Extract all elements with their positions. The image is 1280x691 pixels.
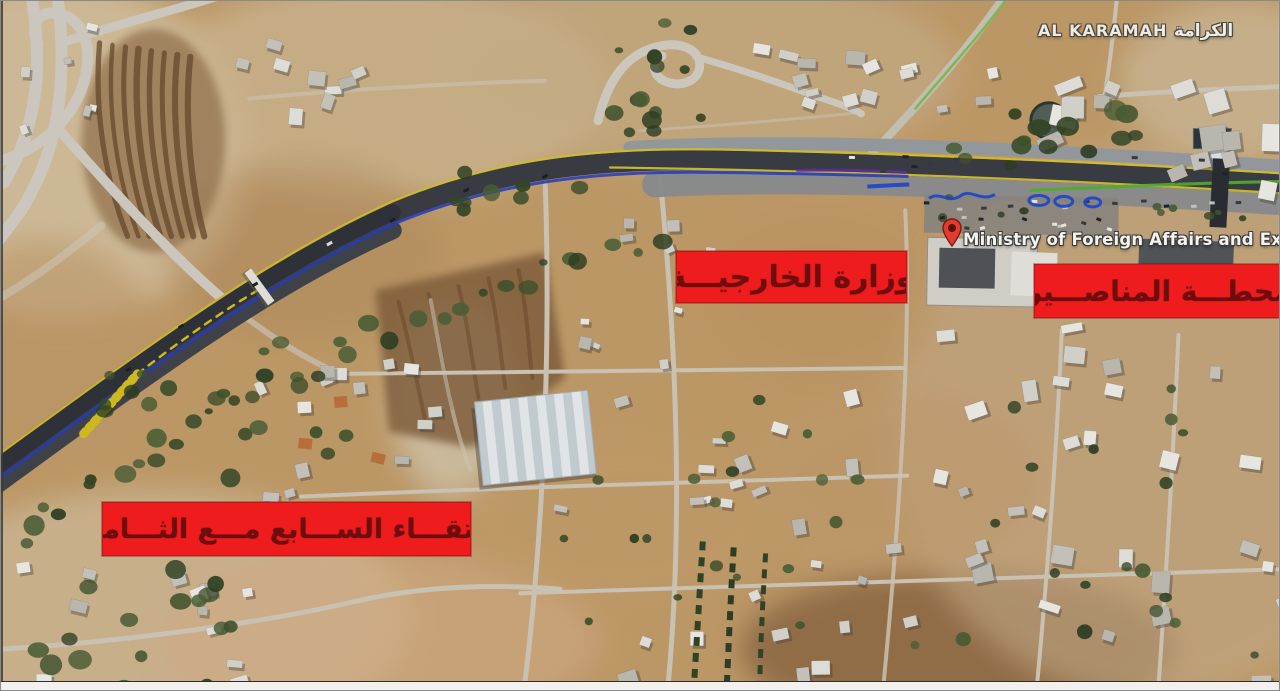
area-name-latin: AL KARAMAH [1038,21,1167,40]
poi-name-label: Ministry of Foreign Affairs and Expatria… [963,230,1280,249]
label-foreign-ministry: وزارة الخارجيـــة [676,251,907,303]
satellite-imagery [1,1,1279,690]
image-grain [2,1,1278,690]
area-name-arabic: الكرامة [1174,21,1233,41]
image-left-border [1,1,3,690]
satellite-map: AL KARAMAH الكرامة Ministry of Foreign A… [0,0,1280,691]
label-seventh-eighth-junction: التقـــاء الســـابع مـــع الثـــامن [102,502,471,556]
bottom-bar [1,681,1279,690]
location-pin-icon [942,218,962,248]
area-name-label: AL KARAMAH الكرامة [1038,21,1233,41]
label-manaseer-station: محطـــة المناصـــير [1034,264,1280,318]
